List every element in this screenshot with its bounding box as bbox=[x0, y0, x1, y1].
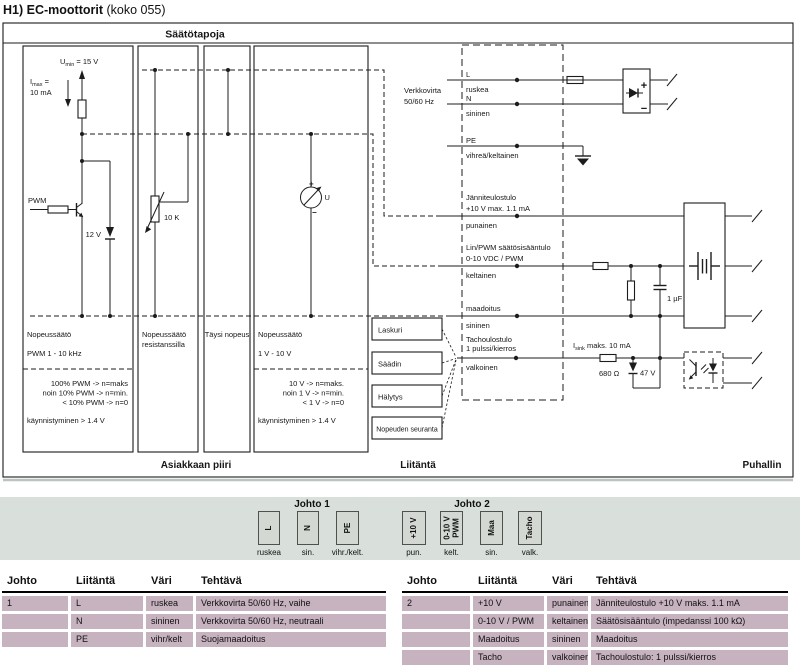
row-gnd-label: maadoitus bbox=[466, 304, 501, 313]
cell bbox=[402, 632, 470, 647]
cell: Maadoitus bbox=[591, 632, 788, 647]
panel1-note3: < 10% PWM -> n=0 bbox=[62, 398, 128, 407]
panel4-note1: 10 V -> n=maks. bbox=[289, 379, 344, 388]
terminal-block-10v-label: +10 V bbox=[410, 517, 419, 538]
terminal-color-tacho: valk. bbox=[498, 548, 562, 557]
panel-captions: Nopeussäätö PWM 1 - 10 kHz 100% PWM -> n… bbox=[23, 330, 368, 425]
table2-header-vari: Väri bbox=[547, 575, 588, 587]
terminal-block-L-label: L bbox=[265, 526, 274, 531]
table-row: 0-10 V / PWM keltainen Säätösisääntulo (… bbox=[402, 614, 788, 629]
down-arrow bbox=[65, 99, 71, 107]
row-ctrl-label1: Lin/PWM säätösisääntulo bbox=[466, 243, 551, 252]
cell bbox=[2, 632, 68, 647]
imax-label: Imax = bbox=[30, 77, 50, 88]
transistor-symbol bbox=[77, 161, 84, 316]
mains-label-1: Verkkovirta bbox=[404, 86, 442, 95]
cell: +10 V bbox=[473, 596, 544, 611]
capacitor-value: 1 µF bbox=[667, 294, 683, 303]
terminal-block-PE-label: PE bbox=[343, 523, 352, 534]
resistor-symbol bbox=[78, 100, 86, 118]
table2-header-johto: Johto bbox=[402, 575, 470, 587]
rectifier: + − bbox=[623, 69, 677, 115]
footer-customer-circuit: Asiakkaan piiri bbox=[161, 460, 232, 471]
laskuri-label: Laskuri bbox=[378, 326, 403, 335]
panel4-note4: käynnistyminen > 1.4 V bbox=[258, 416, 336, 425]
continuation-slash bbox=[752, 260, 762, 272]
cell: punainen bbox=[547, 596, 588, 611]
terminal-block-10v: +10 V bbox=[402, 511, 426, 545]
panel4-note3: < 1 V -> n=0 bbox=[303, 398, 345, 407]
cell bbox=[2, 614, 68, 629]
row-tacho-label2: 1 pulssi/kierros bbox=[466, 344, 516, 353]
wiring-diagram: Säätötapoja Umin = 15 V Imax = 10 mA 12 … bbox=[0, 0, 800, 497]
row-PE-label: PE bbox=[466, 136, 476, 145]
cell: PE bbox=[71, 632, 143, 647]
continuation-slash bbox=[752, 210, 762, 222]
isink-label: Isink maks. 10 mA bbox=[573, 341, 631, 352]
saadin-label: Säädin bbox=[378, 360, 401, 369]
cell: sininen bbox=[547, 632, 588, 647]
terminal-block-N: N bbox=[297, 511, 319, 545]
row-vout-color: punainen bbox=[466, 221, 497, 230]
table1-header-tehtava: Tehtävä bbox=[196, 575, 386, 587]
light-arrow bbox=[701, 365, 706, 370]
row-vout-label2: +10 V max. 1.1 mA bbox=[466, 204, 530, 213]
panel1-note2: noin 10% PWM -> n=min. bbox=[43, 389, 128, 398]
continuation-slash bbox=[667, 74, 677, 86]
table-row: N sininen Verkkovirta 50/60 Hz, neutraal… bbox=[2, 614, 386, 629]
table-row: 2 +10 V punainen Jänniteulostulo +10 V m… bbox=[402, 596, 788, 611]
panel4-circuit: + − U bbox=[301, 134, 330, 316]
table2-header-tehtava: Tehtävä bbox=[591, 575, 788, 587]
cell: Tachoulostulo: 1 pulssi/kierros bbox=[591, 650, 788, 665]
row-PE-color: vihreä/keltainen bbox=[466, 151, 519, 160]
cell: 2 bbox=[402, 596, 470, 611]
voltmeter-arrow bbox=[316, 187, 322, 192]
table1-header: Johto Liitäntä Väri Tehtävä bbox=[2, 573, 386, 593]
led-symbol bbox=[709, 358, 718, 383]
fan-electronics bbox=[684, 203, 762, 328]
footer-interface: Liitäntä bbox=[400, 460, 436, 471]
panel1-note1: 100% PWM -> n=maks bbox=[51, 379, 128, 388]
cell: Säätösisääntulo (impedanssi 100 kΩ) bbox=[591, 614, 788, 629]
row-tacho-label1: Tachoulostulo bbox=[466, 335, 512, 344]
cell: Tacho bbox=[473, 650, 544, 665]
optocoupler bbox=[684, 352, 762, 389]
wire-table-2: Johto Liitäntä Väri Tehtävä 2 +10 V puna… bbox=[402, 573, 788, 665]
row-gnd-color: sininen bbox=[466, 321, 490, 330]
panel3-caption: Täysi nopeus bbox=[205, 330, 250, 339]
zener-47v-value: 47 V bbox=[640, 369, 655, 378]
panel1-circuit: Umin = 15 V Imax = 10 mA 12 V PWM bbox=[28, 57, 115, 316]
isink-rest: maks. 10 mA bbox=[585, 341, 631, 350]
row-vout-label1: Jänniteulostulo bbox=[466, 193, 516, 202]
row-L-label: L bbox=[466, 70, 470, 79]
terminal-block-tacho: Tacho bbox=[518, 511, 542, 545]
panel2-caption2: resistanssilla bbox=[142, 340, 186, 349]
voltmeter-minus: − bbox=[312, 208, 317, 217]
terminal-block-maa: Maa bbox=[480, 511, 503, 545]
table-row: Tacho valkoinen Tachoulostulo: 1 pulssi/… bbox=[402, 650, 788, 665]
optocoupler-box bbox=[684, 352, 723, 388]
terminal-block-maa-label: Maa bbox=[487, 520, 496, 536]
light-arrow bbox=[704, 368, 709, 373]
panel1-note4: käynnistyminen > 1.4 V bbox=[27, 416, 105, 425]
cell: valkoinen bbox=[547, 650, 588, 665]
up-arrow bbox=[79, 70, 85, 79]
dashed-bus-lines bbox=[30, 70, 447, 316]
imax-rest: = bbox=[42, 77, 49, 86]
row-N-label: N bbox=[466, 94, 471, 103]
diagram-frame bbox=[3, 23, 793, 477]
cell: vihr/kelt bbox=[146, 632, 193, 647]
cell bbox=[402, 614, 470, 629]
table2-header-liitanta: Liitäntä bbox=[473, 575, 544, 587]
cell: keltainen bbox=[547, 614, 588, 629]
cell: Verkkovirta 50/60 Hz, vaihe bbox=[196, 596, 386, 611]
cell: Verkkovirta 50/60 Hz, neutraali bbox=[196, 614, 386, 629]
zener-47v-symbol bbox=[629, 358, 638, 388]
isink-sub: sink bbox=[575, 346, 585, 352]
table-row: 1 L ruskea Verkkovirta 50/60 Hz, vaihe bbox=[2, 596, 386, 611]
cell: sininen bbox=[146, 614, 193, 629]
continuation-slash bbox=[667, 98, 677, 110]
resistor-680-value: 680 Ω bbox=[599, 369, 620, 378]
row-tacho-color: valkoinen bbox=[466, 363, 498, 372]
row-N-color: sininen bbox=[466, 109, 490, 118]
cell: Suojamaadoitus bbox=[196, 632, 386, 647]
umin-rest: = 15 V bbox=[74, 57, 98, 66]
umin-sub: min bbox=[65, 62, 74, 68]
diagram-header: Säätötapoja bbox=[165, 29, 225, 41]
halytys-label: Hälytys bbox=[378, 393, 403, 402]
footer-fan: Puhallin bbox=[743, 460, 782, 471]
rectifier-plus: + bbox=[641, 80, 647, 92]
terminal-block-pwm-line2: PWM bbox=[452, 516, 461, 540]
shunt-resistor-symbol bbox=[628, 281, 635, 300]
capacitor-symbol bbox=[654, 286, 667, 290]
panel1-caption2: PWM 1 - 10 kHz bbox=[27, 349, 82, 358]
row-L-color: ruskea bbox=[466, 85, 489, 94]
wire-table-1: Johto Liitäntä Väri Tehtävä 1 L ruskea V… bbox=[2, 573, 386, 647]
continuation-slash bbox=[752, 377, 762, 389]
rectifier-minus: − bbox=[641, 103, 647, 115]
imax-sub: max bbox=[32, 82, 43, 88]
table2-header: Johto Liitäntä Väri Tehtävä bbox=[402, 573, 788, 593]
table1-header-johto: Johto bbox=[2, 575, 68, 587]
panel1-caption1: Nopeussäätö bbox=[27, 330, 71, 339]
voltmeter-u-label: U bbox=[325, 193, 330, 202]
table1-header-vari: Väri bbox=[146, 575, 193, 587]
terminal-block-pwm: 0-10 VPWM bbox=[440, 511, 463, 545]
mains-label-2: 50/60 Hz bbox=[404, 97, 434, 106]
zener-diode-symbol bbox=[106, 227, 114, 237]
nopeuden-seuranta-label: Nopeuden seuranta bbox=[376, 427, 438, 434]
row-ctrl-label2: 0-10 VDC / PWM bbox=[466, 254, 524, 263]
continuation-slash bbox=[752, 352, 762, 364]
cell: Maadoitus bbox=[473, 632, 544, 647]
pwm-input-label: PWM bbox=[28, 196, 46, 205]
terminal-block-N-label: N bbox=[304, 525, 313, 531]
panel2-circuit: 10 K bbox=[145, 70, 188, 316]
terminal-block-pwm-label: 0-10 VPWM bbox=[443, 516, 460, 540]
continuation-slash bbox=[752, 310, 762, 322]
panel4-caption2: 1 V - 10 V bbox=[258, 349, 291, 358]
terminal-color-PE: vihr./kelt. bbox=[316, 548, 380, 557]
ground-symbol bbox=[575, 146, 591, 166]
series-resistor-symbol bbox=[593, 263, 608, 270]
panel3-box bbox=[204, 46, 250, 452]
connector-band: Johto 1 Johto 2 L N PE +10 V 0-10 VPWM M… bbox=[0, 497, 800, 560]
pot-value-label: 10 K bbox=[164, 213, 179, 222]
johto1-title: Johto 1 bbox=[262, 499, 362, 510]
control-function-boxes: Laskuri Säädin Hälytys Nopeuden seuranta bbox=[372, 318, 456, 439]
resistor-680-symbol bbox=[600, 355, 616, 362]
terminal-block-tacho-label: Tacho bbox=[526, 517, 535, 540]
zener-12v-label: 12 V bbox=[86, 230, 101, 239]
cell: 1 bbox=[2, 596, 68, 611]
table1-header-liitanta: Liitäntä bbox=[71, 575, 143, 587]
johto2-title: Johto 2 bbox=[422, 499, 522, 510]
panel4-note2: noin 1 V -> n=min. bbox=[283, 389, 344, 398]
cell: L bbox=[71, 596, 143, 611]
terminal-block-PE: PE bbox=[336, 511, 359, 545]
cell bbox=[402, 650, 470, 665]
panel2-box bbox=[138, 46, 198, 452]
terminal-block-L: L bbox=[258, 511, 280, 545]
umin-label: Umin = 15 V bbox=[60, 57, 98, 68]
base-resistor-symbol bbox=[48, 206, 68, 213]
cell: ruskea bbox=[146, 596, 193, 611]
panel2-caption1: Nopeussäätö bbox=[142, 330, 186, 339]
cell: Jänniteulostulo +10 V maks. 1.1 mA bbox=[591, 596, 788, 611]
phototransistor-symbol bbox=[689, 360, 696, 380]
row-ctrl-color: keltainen bbox=[466, 271, 496, 280]
tacho-output: Isink maks. 10 mA 680 Ω 47 V bbox=[573, 341, 684, 388]
table-row: Maadoitus sininen Maadoitus bbox=[402, 632, 788, 647]
imax-value: 10 mA bbox=[30, 88, 52, 97]
terminal-block-pwm-line1: 0-10 V bbox=[443, 516, 452, 540]
cell: N bbox=[71, 614, 143, 629]
cell: 0-10 V / PWM bbox=[473, 614, 544, 629]
table-row: PE vihr/kelt Suojamaadoitus bbox=[2, 632, 386, 647]
panel4-caption1: Nopeussäätö bbox=[258, 330, 302, 339]
voltmeter-plus: + bbox=[309, 180, 314, 189]
